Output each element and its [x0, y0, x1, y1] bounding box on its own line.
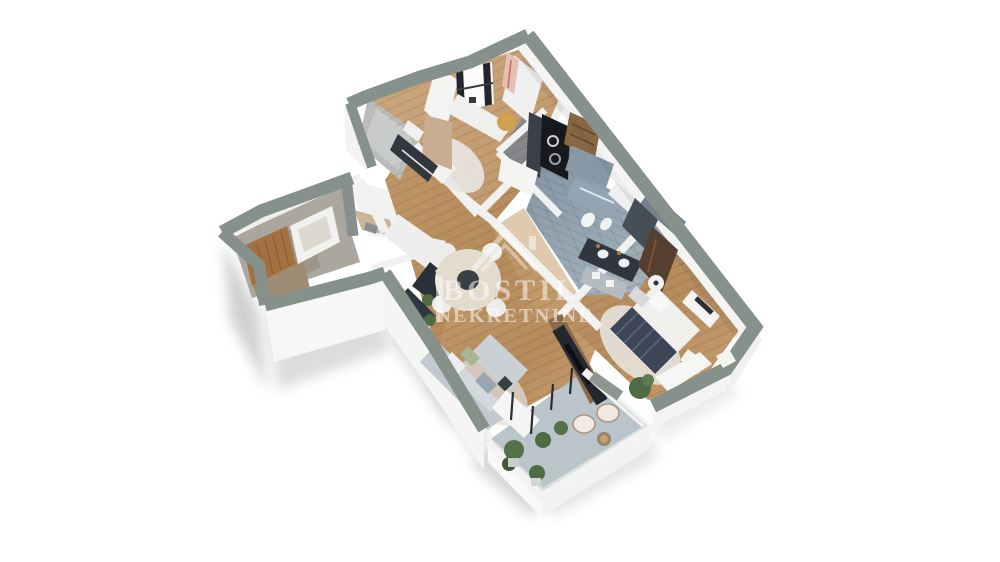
svg-text:BOSTIL: BOSTIL	[443, 274, 579, 307]
svg-text:NEKRETNINE: NEKRETNINE	[436, 305, 594, 327]
